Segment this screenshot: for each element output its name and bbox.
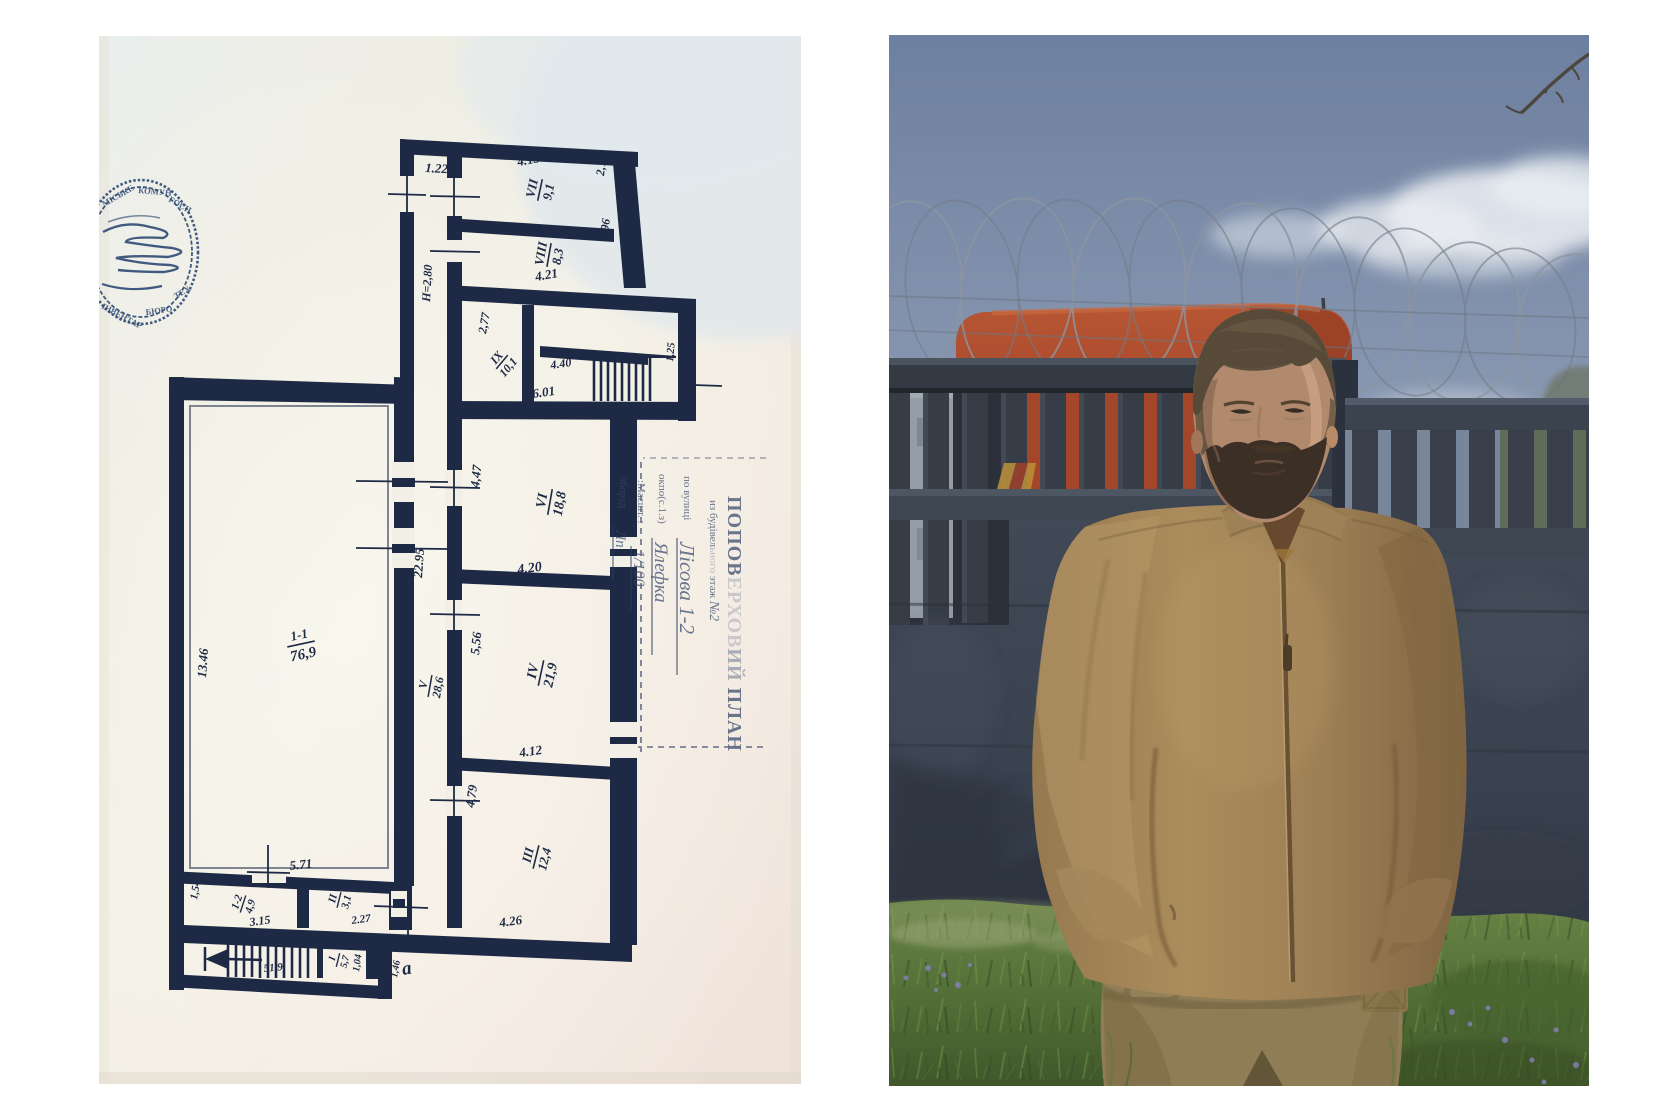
svg-text:1.22: 1.22 [425, 160, 449, 176]
svg-text:Ялефка: Ялефка [650, 541, 671, 603]
svg-text:по вулиці: по вулиці [681, 476, 693, 520]
svg-text:4,47: 4,47 [467, 464, 484, 490]
svg-text:51,9: 51,9 [263, 961, 284, 975]
svg-text:13.46: 13.46 [194, 647, 211, 678]
svg-text:6.01: 6.01 [531, 383, 556, 401]
svg-text:8,3: 8,3 [549, 247, 567, 266]
svg-text:2,19: 2,19 [593, 154, 609, 177]
svg-text:окпо(с.1.з): окпо(с.1.з) [656, 474, 668, 524]
svg-text:Лп: Лп [612, 529, 628, 548]
svg-text:22.95: 22.95 [410, 547, 427, 579]
svg-text:5,56: 5,56 [467, 631, 484, 656]
svg-text:5.71: 5.71 [289, 856, 313, 873]
svg-text:H=2,80: H=2,80 [419, 264, 435, 303]
svg-text:Зборуд: Зборуд [617, 476, 629, 509]
svg-text:3.15: 3.15 [248, 913, 272, 930]
svg-text:Лісова 1-2: Лісова 1-2 [675, 541, 699, 635]
svg-text:ПОПОВЕРХОВИЙ ПЛАН: ПОПОВЕРХОВИЙ ПЛАН [723, 496, 746, 752]
svg-text:1/100: 1/100 [630, 550, 647, 586]
svg-text:1,96: 1,96 [596, 218, 613, 241]
svg-text:1,25: 1,25 [664, 342, 678, 363]
svg-text:из будівельного этаж №2: из будівельного этаж №2 [706, 500, 721, 621]
